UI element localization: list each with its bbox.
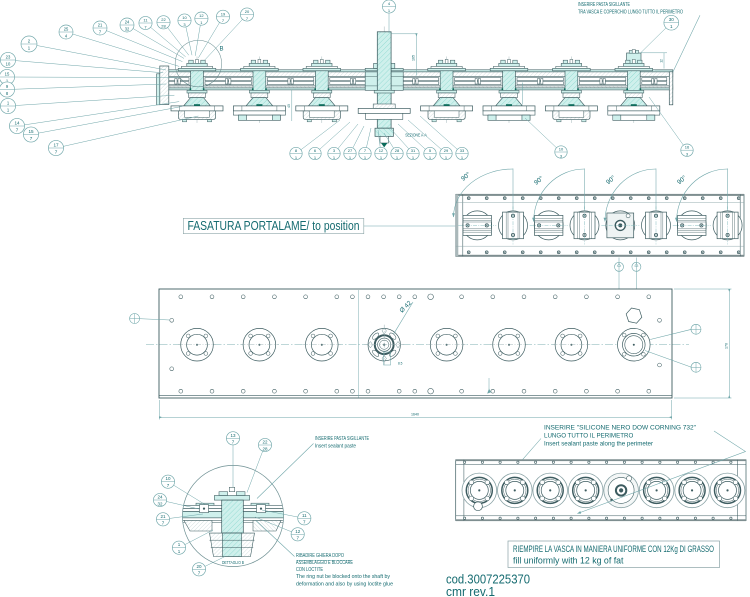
svg-text:32: 32 <box>125 26 130 31</box>
svg-text:The ring nut be blocked onto t: The ring nut be blocked onto the shaft b… <box>296 574 390 580</box>
svg-text:7: 7 <box>55 149 58 154</box>
svg-text:16: 16 <box>685 145 690 150</box>
svg-text:12: 12 <box>199 13 204 18</box>
svg-text:23: 23 <box>6 55 11 60</box>
svg-text:27: 27 <box>348 148 353 153</box>
svg-text:ASSEMBLAGGIO E BLOCCARE: ASSEMBLAGGIO E BLOCCARE <box>296 560 353 566</box>
svg-text:21: 21 <box>160 514 166 519</box>
svg-text:40: 40 <box>287 104 291 108</box>
svg-text:14: 14 <box>14 121 20 126</box>
svg-text:SEZIONE A-A: SEZIONE A-A <box>405 132 427 137</box>
svg-text:fill uniformly with 12 kg of f: fill uniformly with 12 kg of fat <box>513 556 624 566</box>
svg-text:29: 29 <box>444 148 449 153</box>
svg-text:12: 12 <box>295 529 301 534</box>
svg-text:10: 10 <box>559 147 564 152</box>
svg-text:10: 10 <box>165 476 171 481</box>
svg-text:deformation and also by using: deformation and also by using loctite gl… <box>296 581 393 587</box>
svg-text:28: 28 <box>262 446 268 451</box>
svg-text:165: 165 <box>412 55 416 61</box>
svg-text:19: 19 <box>221 11 226 16</box>
svg-text:11: 11 <box>302 513 307 518</box>
svg-text:24: 24 <box>125 20 130 25</box>
svg-text:20: 20 <box>196 564 202 569</box>
svg-text:1: 1 <box>670 24 673 29</box>
svg-text:21: 21 <box>98 23 103 28</box>
svg-text:32: 32 <box>157 501 163 506</box>
svg-text:15: 15 <box>5 72 10 77</box>
svg-text:10: 10 <box>6 61 11 66</box>
svg-text:B: B <box>220 47 224 53</box>
svg-text:FASATURA PORTALAME/ to positio: FASATURA PORTALAME/ to position <box>188 219 360 233</box>
svg-text:17: 17 <box>53 143 59 148</box>
svg-text:Insert sealant paste: Insert sealant paste <box>315 444 356 450</box>
svg-text:INSERIRE "SILICONE NERO DOW CO: INSERIRE "SILICONE NERO DOW CORNING 732" <box>544 425 696 432</box>
svg-text:8.5: 8.5 <box>398 362 403 366</box>
svg-text:28: 28 <box>395 148 400 153</box>
svg-text:TRA VASCA E COPERCHIO LUNGO TU: TRA VASCA E COPERCHIO LUNGO TUTTO IL PER… <box>578 10 683 16</box>
svg-text:22: 22 <box>262 440 268 445</box>
svg-text:7: 7 <box>30 136 33 141</box>
svg-text:12: 12 <box>379 148 384 153</box>
svg-text:1640: 1640 <box>411 413 419 417</box>
svg-text:28: 28 <box>161 24 166 29</box>
svg-text:DETTAGLIO B: DETTAGLIO B <box>222 560 244 565</box>
svg-text:24: 24 <box>157 495 163 500</box>
svg-text:7: 7 <box>16 127 19 132</box>
svg-text:CON LOCTITE: CON LOCTITE <box>296 567 323 573</box>
svg-text:20: 20 <box>245 9 250 14</box>
svg-text:RIBADIRE GHIERA DOPO: RIBADIRE GHIERA DOPO <box>296 553 344 559</box>
svg-text:Insert sealant paste along the: Insert sealant paste along the perimeter <box>544 440 653 447</box>
svg-text:22: 22 <box>161 17 166 22</box>
svg-text:INSERIRE PASTA SIGILLANTE: INSERIRE PASTA SIGILLANTE <box>578 2 630 8</box>
svg-text:10: 10 <box>182 15 187 20</box>
svg-text:12: 12 <box>659 59 663 63</box>
svg-text:INSERIRE PASTA SIGILLANTE: INSERIRE PASTA SIGILLANTE <box>315 436 369 442</box>
svg-text:cmr rev.1: cmr rev.1 <box>446 584 495 597</box>
svg-text:LUNGO TUTTO IL PERIMETRO: LUNGO TUTTO IL PERIMETRO <box>544 432 633 439</box>
svg-text:RIEMPIRE LA VASCA IN MANIERA U: RIEMPIRE LA VASCA IN MANIERA UNIFORME CO… <box>513 544 714 554</box>
svg-text:170: 170 <box>725 343 729 349</box>
svg-text:15: 15 <box>28 129 34 134</box>
svg-text:25: 25 <box>64 27 69 32</box>
svg-text:30: 30 <box>669 17 675 22</box>
svg-text:31: 31 <box>411 148 416 153</box>
svg-text:33: 33 <box>460 148 465 153</box>
svg-text:13: 13 <box>230 433 236 438</box>
